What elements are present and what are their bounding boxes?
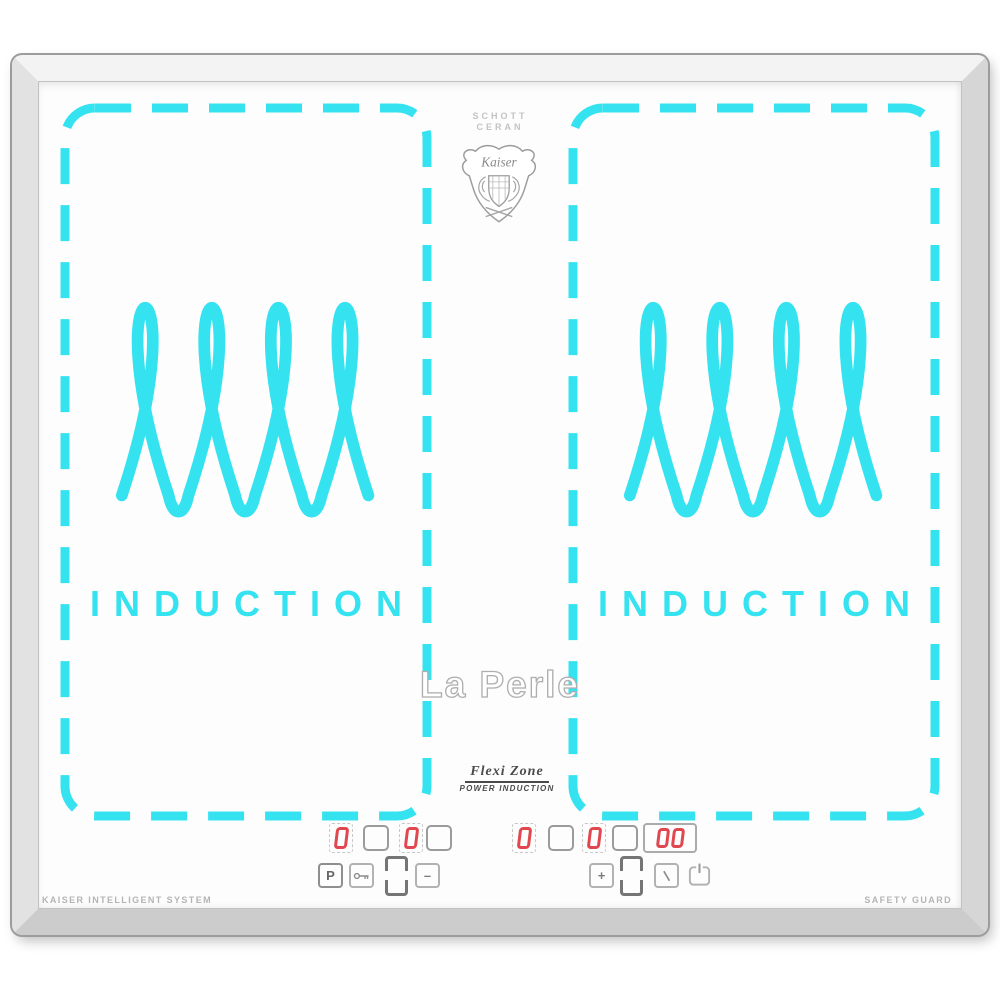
timer-display: [643, 823, 697, 853]
left-front-power-display: [399, 823, 423, 853]
kaiser-intelligent-system-label: KAISER INTELLIGENT SYSTEM: [42, 895, 212, 905]
cooking-zone-left: INDUCTION: [60, 103, 432, 821]
model-name: La Perle: [350, 664, 650, 706]
schott-line2: CERAN: [432, 122, 568, 133]
left-rear-power-display: [329, 823, 353, 853]
flexi-zone-label: Flexi Zone: [465, 764, 548, 783]
zone-bridge-indicator-left[interactable]: [385, 856, 408, 896]
induction-label-right: INDUCTION: [568, 583, 940, 625]
seven-segment-zero: [516, 827, 532, 849]
timer-clock-button[interactable]: [654, 863, 679, 888]
plus-button[interactable]: +: [589, 863, 614, 888]
minus-button[interactable]: –: [415, 863, 440, 888]
seven-segment-zero: [670, 828, 684, 848]
crest-brand-text: Kaiser: [480, 155, 517, 170]
key-lock-icon: [353, 870, 370, 882]
seven-segment-zero: [403, 827, 419, 849]
timer-clock-icon: [660, 869, 674, 883]
kaiser-crest-logo: Kaiser: [454, 143, 546, 231]
right-rear-zone-select-pad[interactable]: [548, 825, 574, 851]
schott-line1: SCHOTT: [432, 111, 568, 122]
cooking-zone-right: INDUCTION: [568, 103, 940, 821]
left-rear-zone-select-pad[interactable]: [363, 825, 389, 851]
right-front-zone-select-pad[interactable]: [612, 825, 638, 851]
seven-segment-zero: [586, 827, 602, 849]
right-rear-power-display: [512, 823, 536, 853]
induction-hob-body: INDUCTION INDUCTION SCHOTT CERAN Kaiser: [12, 55, 988, 935]
feature-badge: Flexi Zone POWER INDUCTION: [432, 762, 582, 793]
key-lock-button[interactable]: [349, 863, 374, 888]
power-button[interactable]: [687, 863, 712, 888]
induction-label-left: INDUCTION: [60, 583, 432, 625]
boost-button[interactable]: P: [318, 863, 343, 888]
seven-segment-zero: [655, 828, 669, 848]
right-front-power-display: [582, 823, 606, 853]
power-icon: [687, 863, 712, 888]
zone-bridge-indicator-right[interactable]: [620, 856, 643, 896]
power-induction-label: POWER INDUCTION: [432, 784, 582, 793]
induction-coil-icon: [102, 295, 390, 523]
left-front-zone-select-pad[interactable]: [426, 825, 452, 851]
seven-segment-zero: [333, 827, 349, 849]
induction-coil-icon: [610, 295, 898, 523]
schott-ceran-label: SCHOTT CERAN: [432, 111, 568, 133]
glass-surface: INDUCTION INDUCTION SCHOTT CERAN Kaiser: [38, 81, 962, 909]
safety-guard-label: SAFETY GUARD: [864, 895, 952, 905]
